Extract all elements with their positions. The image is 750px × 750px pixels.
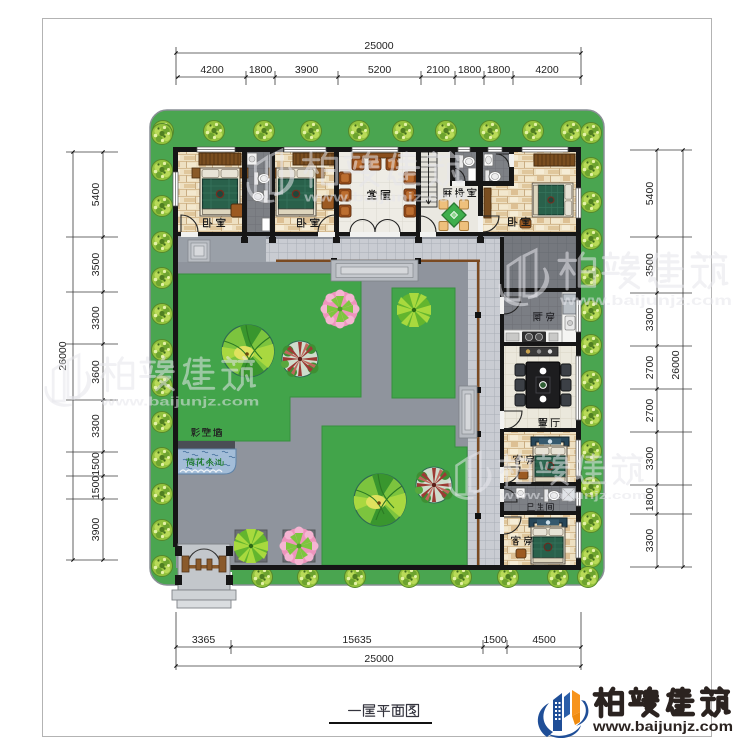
svg-text:4200: 4200 (200, 64, 224, 76)
svg-text:3300: 3300 (644, 529, 656, 553)
svg-text:3300: 3300 (90, 306, 102, 330)
svg-text:1800: 1800 (249, 64, 273, 76)
svg-text:2700: 2700 (644, 356, 656, 380)
svg-text:15635: 15635 (342, 634, 371, 646)
svg-text:1500: 1500 (90, 452, 102, 476)
svg-text:5400: 5400 (644, 182, 656, 206)
svg-text:www.baijunjz.com: www.baijunjz.com (592, 719, 733, 734)
svg-text:www.baijunjz.com: www.baijunjz.com (499, 490, 647, 502)
svg-text:5400: 5400 (90, 183, 102, 207)
svg-text:1800: 1800 (458, 64, 482, 76)
svg-text:4500: 4500 (532, 634, 556, 646)
svg-text:3300: 3300 (644, 447, 656, 471)
svg-text:26000: 26000 (670, 350, 682, 379)
svg-text:1500: 1500 (90, 476, 102, 500)
svg-text:4200: 4200 (535, 64, 559, 76)
svg-text:www.baijunjz.com: www.baijunjz.com (559, 293, 732, 308)
svg-text:5200: 5200 (368, 64, 392, 76)
svg-text:3500: 3500 (90, 253, 102, 277)
svg-text:www.baijunjz.com: www.baijunjz.com (100, 395, 260, 409)
svg-text:3300: 3300 (90, 414, 102, 438)
svg-text:2100: 2100 (426, 64, 450, 76)
svg-text:www.baijunjz.com: www.baijunjz.com (303, 191, 466, 205)
svg-text:3300: 3300 (644, 308, 656, 332)
svg-text:25000: 25000 (364, 653, 393, 665)
svg-text:1500: 1500 (483, 634, 507, 646)
svg-text:3900: 3900 (90, 518, 102, 542)
svg-text:2700: 2700 (644, 399, 656, 423)
svg-text:3365: 3365 (192, 634, 216, 646)
svg-text:3900: 3900 (295, 64, 319, 76)
svg-text:1800: 1800 (487, 64, 511, 76)
svg-text:25000: 25000 (364, 40, 393, 52)
